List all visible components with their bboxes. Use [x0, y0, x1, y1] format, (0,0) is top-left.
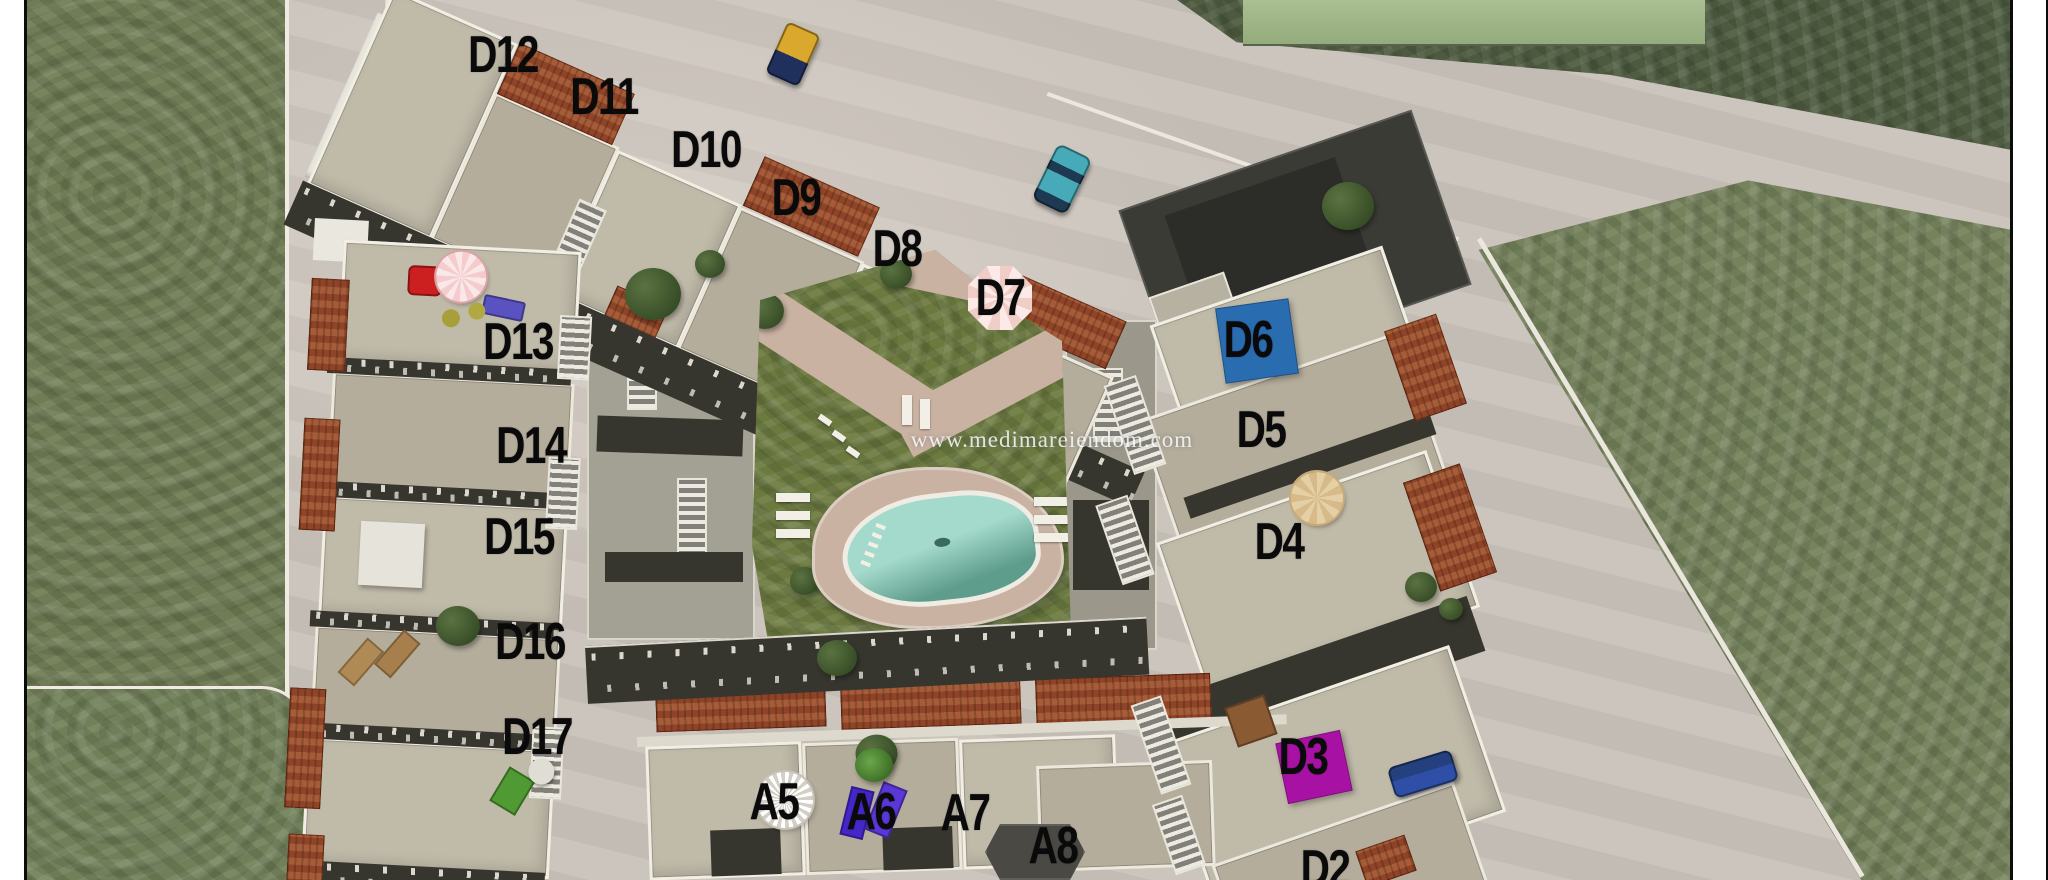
unit-label-D4: D4	[1255, 512, 1304, 572]
unit-label-D14: D14	[496, 416, 566, 476]
unit-label-A6: A6	[847, 782, 896, 842]
unit-label-D12: D12	[468, 25, 538, 85]
unit-label-D6: D6	[1224, 310, 1273, 370]
unit-label-D3: D3	[1279, 727, 1328, 787]
unit-label-A5: A5	[750, 772, 799, 832]
site-plan-aerial-render: www.medimareiendom.com D12D11D10D9D8D7D1…	[27, 0, 2010, 880]
unit-label-D11: D11	[570, 67, 637, 127]
unit-label-D7: D7	[976, 268, 1025, 328]
brochure-page: www.medimareiendom.com D12D11D10D9D8D7D1…	[0, 0, 2048, 880]
unit-label-D17: D17	[502, 707, 572, 767]
page-left-margin	[0, 0, 24, 880]
unit-label-D10: D10	[671, 120, 741, 180]
watermark: www.medimareiendom.com	[911, 427, 1193, 453]
page-left-border	[24, 0, 27, 880]
unit-label-A7: A7	[941, 783, 990, 843]
unit-label-D9: D9	[772, 168, 821, 228]
unit-label-D15: D15	[484, 507, 554, 567]
unit-label-D5: D5	[1237, 400, 1286, 460]
unit-label-D16: D16	[495, 612, 565, 672]
unit-label-D13: D13	[483, 312, 553, 372]
unit-label-D2: D2	[1301, 839, 1350, 880]
unit-label-D8: D8	[873, 219, 922, 279]
page-right-margin	[2013, 0, 2046, 880]
unit-label-A8: A8	[1029, 816, 1078, 876]
